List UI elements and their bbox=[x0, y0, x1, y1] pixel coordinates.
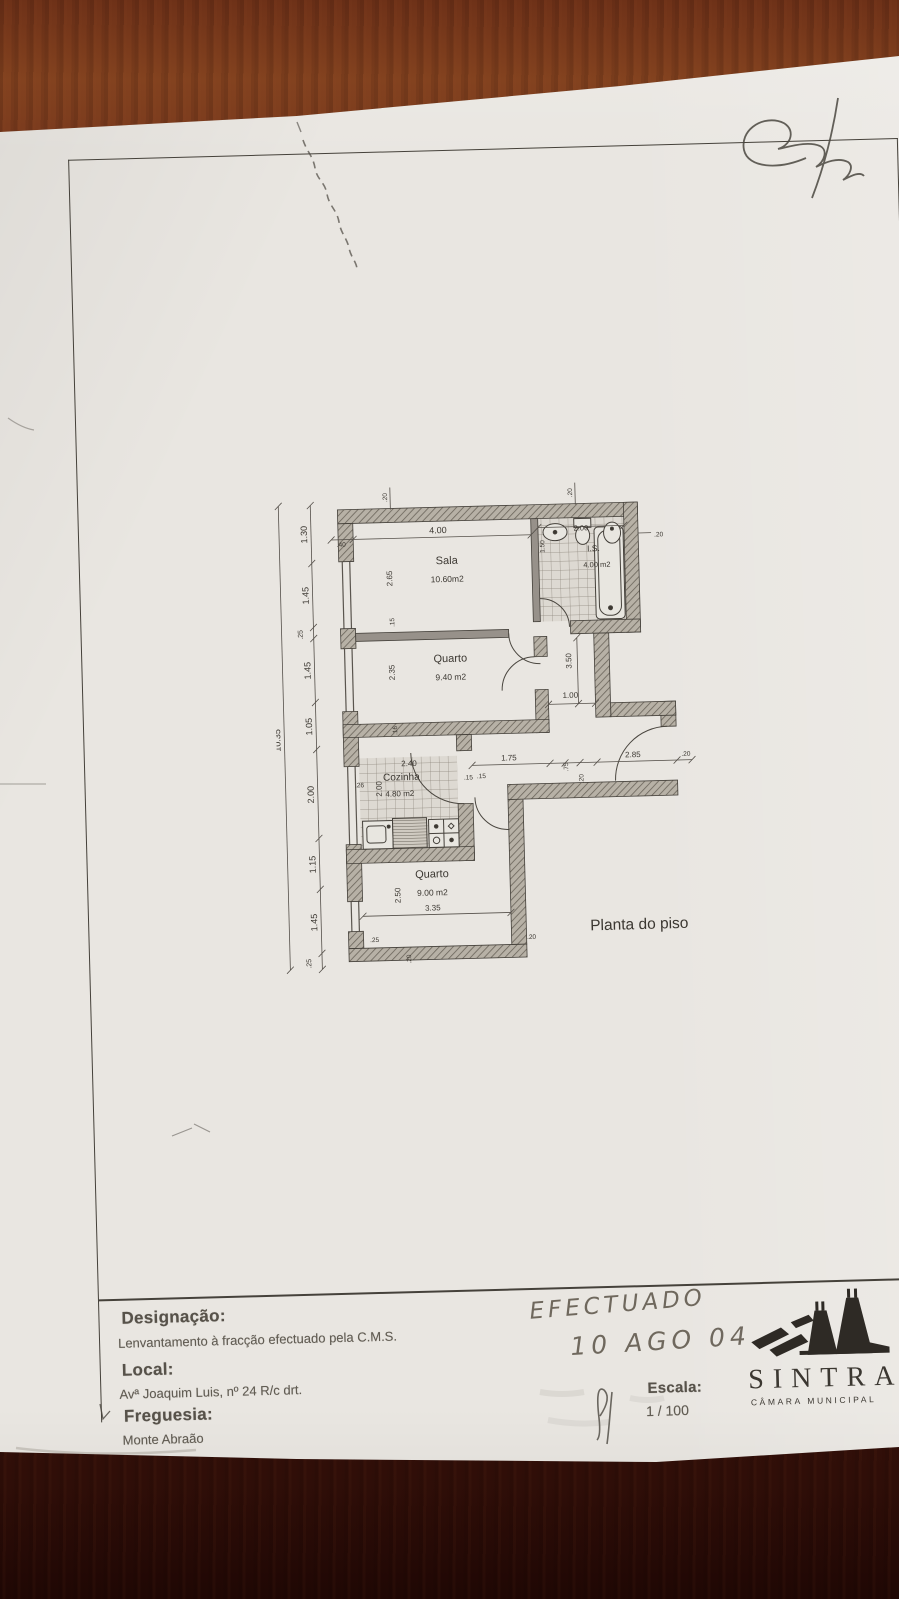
plan-title: Planta do piso bbox=[590, 915, 689, 935]
logo-name: SINTRA bbox=[748, 1360, 899, 1395]
room-label-quarto2: Quarto bbox=[415, 868, 449, 881]
dim-quarto2-c: .20 bbox=[527, 934, 537, 941]
drawing-sheet: 10.35 1.30 1.45 .25 1.45 1.05 2.00 1.15 … bbox=[0, 0, 899, 1599]
room-label-sala: Sala bbox=[436, 555, 459, 568]
dim-wall-20-a: .20 bbox=[382, 493, 389, 503]
sintra-municipal-logo: SINTRA CÂMARA MUNICIPAL bbox=[728, 1286, 899, 1416]
dim-quarto2-b: .20 bbox=[406, 954, 413, 964]
cooktop-icon bbox=[429, 819, 460, 848]
dim-left-chain-2: .25 bbox=[297, 630, 304, 640]
walls bbox=[337, 501, 682, 962]
designacao-label: Designação: bbox=[121, 1306, 226, 1329]
freguesia-label: Freguesia: bbox=[124, 1404, 213, 1426]
dim-left-chain-7: 1.45 bbox=[309, 914, 319, 932]
dim-cozinha-width: 2.40 bbox=[401, 759, 417, 768]
dim-corr-a: 1.75 bbox=[501, 753, 517, 762]
dim-corr-e: 2.85 bbox=[625, 750, 641, 759]
dim-quarto1-depth: 2.35 bbox=[387, 664, 396, 680]
dim-quarto2-a: .25 bbox=[370, 937, 380, 944]
sink-icon bbox=[543, 523, 567, 541]
kitchen-sink-icon bbox=[363, 821, 394, 850]
dim-bath-door: 1.50 bbox=[539, 540, 546, 553]
escala-label: Escala: bbox=[647, 1379, 702, 1397]
dim-left-chain-3: 1.45 bbox=[302, 662, 312, 680]
dim-corr-b: .15 bbox=[477, 773, 487, 780]
dim-cozinha-door: .15 bbox=[464, 774, 474, 781]
freguesia-value: Monte Abraão bbox=[122, 1431, 203, 1448]
escala-value: 1 / 100 bbox=[646, 1402, 689, 1419]
dim-left-chain-8: .25 bbox=[306, 959, 313, 969]
paper-sheet: 10.35 1.30 1.45 .25 1.45 1.05 2.00 1.15 … bbox=[0, 0, 899, 1599]
local-label: Local: bbox=[122, 1359, 174, 1380]
dim-hall-depth: 3.50 bbox=[564, 652, 573, 668]
dim-wall-20-b: .20 bbox=[567, 488, 574, 498]
dim-top-pier: .40 bbox=[337, 542, 347, 549]
room-label-is: I.S. bbox=[587, 543, 600, 553]
dim-left-chain-0: 1.30 bbox=[299, 526, 309, 544]
floor-plan-drawing: 10.35 1.30 1.45 .25 1.45 1.05 2.00 1.15 … bbox=[270, 468, 703, 979]
room-area-quarto1: 9.40 m2 bbox=[435, 672, 466, 683]
dim-quarto1-wall: .16 bbox=[392, 725, 399, 735]
dim-quarto2-depth: 2.50 bbox=[393, 887, 402, 903]
dim-bath-width: 2.00 bbox=[574, 523, 589, 532]
dim-top-width: 4.00 bbox=[429, 525, 447, 535]
room-label-quarto1: Quarto bbox=[433, 653, 467, 666]
dim-quarto2-width: 3.35 bbox=[425, 903, 441, 912]
room-area-sala: 10.60m2 bbox=[431, 574, 465, 585]
dim-left-chain-6: 1.15 bbox=[307, 856, 317, 874]
dim-cozinha-depth: 2.00 bbox=[374, 780, 383, 796]
room-label-cozinha: Cozinha bbox=[383, 772, 420, 784]
logo-subtitle: CÂMARA MUNICIPAL bbox=[751, 1394, 877, 1407]
room-area-quarto2: 9.00 m2 bbox=[417, 887, 448, 898]
room-area-is: 4.00 m2 bbox=[583, 560, 610, 570]
dim-left-chain-5: 2.00 bbox=[306, 786, 316, 804]
dim-left-chain-4: 1.05 bbox=[304, 718, 314, 736]
dim-corr-f: .20 bbox=[681, 751, 691, 758]
photo-scene: 10.35 1.30 1.45 .25 1.45 1.05 2.00 1.15 … bbox=[0, 0, 899, 1599]
room-area-cozinha: 4.80 m2 bbox=[385, 789, 415, 799]
dim-sala-depth: 2.65 bbox=[385, 570, 394, 586]
dim-bath-right: .20 bbox=[654, 531, 664, 538]
dim-hall-width: 1.00 bbox=[562, 691, 578, 700]
sintra-palace-icon bbox=[750, 1288, 890, 1358]
stove-icon bbox=[392, 818, 427, 849]
dim-corr-c: .75 bbox=[563, 762, 570, 772]
dim-left-chain-1: 1.45 bbox=[300, 587, 310, 605]
dim-cozinha-wall: .26 bbox=[355, 782, 365, 789]
dim-sala-wall: .15 bbox=[389, 617, 396, 627]
dim-corr-d: .20 bbox=[578, 774, 585, 784]
